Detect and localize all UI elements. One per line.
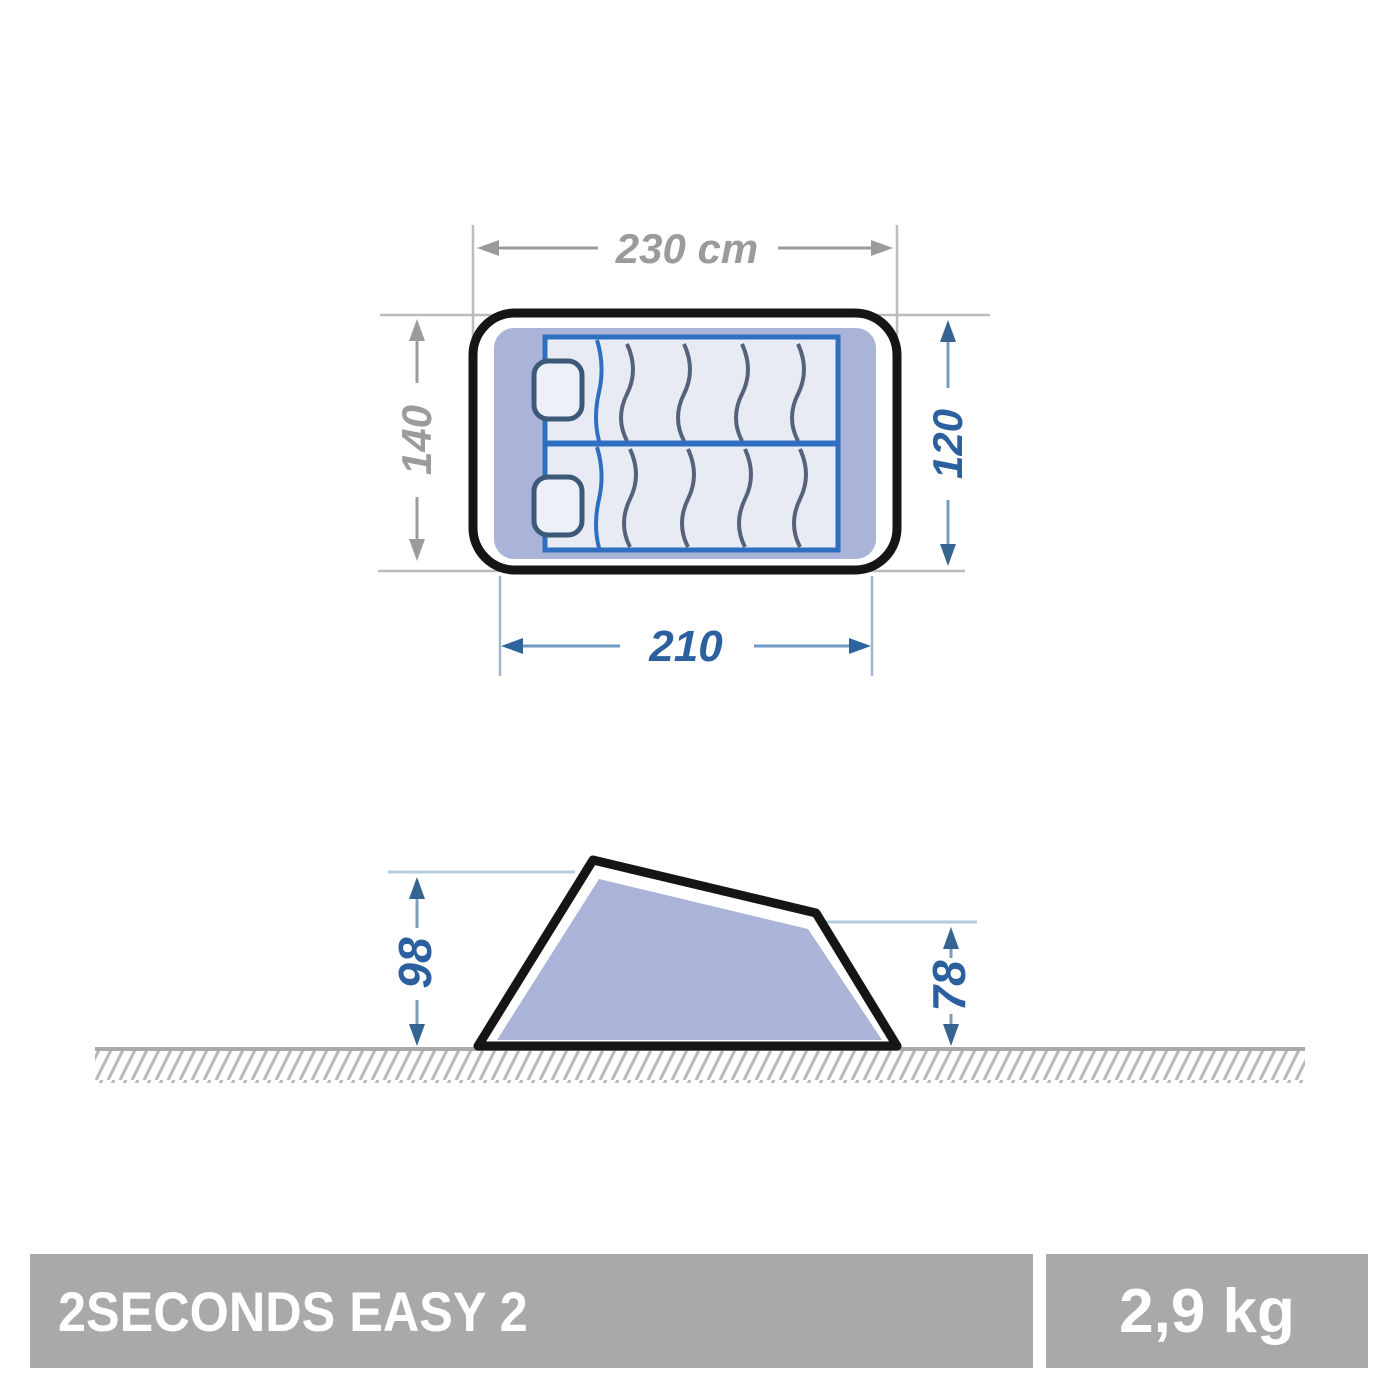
arrow-up-icon: [409, 319, 425, 341]
pillow-icon: [534, 361, 582, 419]
arrow-down-icon: [940, 544, 956, 566]
inner-depth-label: 120: [924, 409, 971, 479]
tent-dimension-diagram: 230 cm 140: [0, 0, 1400, 1253]
arrow-down-icon: [409, 539, 425, 561]
arrow-left-icon: [477, 240, 499, 256]
arrow-left-icon: [501, 638, 523, 654]
side-view: 98 78: [95, 860, 1305, 1083]
top-view: 230 cm 140: [378, 225, 990, 676]
arrow-right-icon: [849, 638, 871, 654]
arrow-up-icon: [940, 320, 956, 342]
weight-value: 2,9 kg: [1119, 1276, 1295, 1347]
weight-badge: 2,9 kg: [1046, 1254, 1368, 1368]
outer-width-label: 230 cm: [615, 225, 758, 272]
arrow-right-icon: [871, 240, 893, 256]
arrow-down-icon: [409, 1024, 425, 1046]
dimension-outer-depth: 140: [393, 319, 440, 561]
product-name-bar: 2SECONDS EASY 2: [30, 1254, 1033, 1368]
front-height-label: 98: [389, 937, 441, 989]
product-name: 2SECONDS EASY 2: [58, 1279, 528, 1344]
pillow-icon: [534, 477, 582, 535]
rear-height-label: 78: [923, 960, 975, 1012]
tent-profile-fill: [497, 879, 882, 1040]
dimension-inner-depth: 120: [924, 320, 971, 566]
tent-dimension-sheet: 230 cm 140: [0, 0, 1400, 1400]
tent-profile: [478, 860, 897, 1046]
arrow-down-icon: [943, 1024, 959, 1046]
ground-hatch: [95, 1050, 1305, 1083]
arrow-up-icon: [943, 927, 959, 949]
dimension-inner-width: 210: [501, 622, 871, 671]
arrow-up-icon: [409, 877, 425, 899]
outer-depth-label: 140: [393, 405, 440, 475]
dimension-outer-width: 230 cm: [477, 225, 893, 272]
tent-floorplan: [473, 313, 897, 570]
dimension-rear-height: 78: [923, 927, 975, 1046]
inner-width-label: 210: [648, 622, 723, 671]
dimension-front-height: 98: [389, 877, 441, 1046]
